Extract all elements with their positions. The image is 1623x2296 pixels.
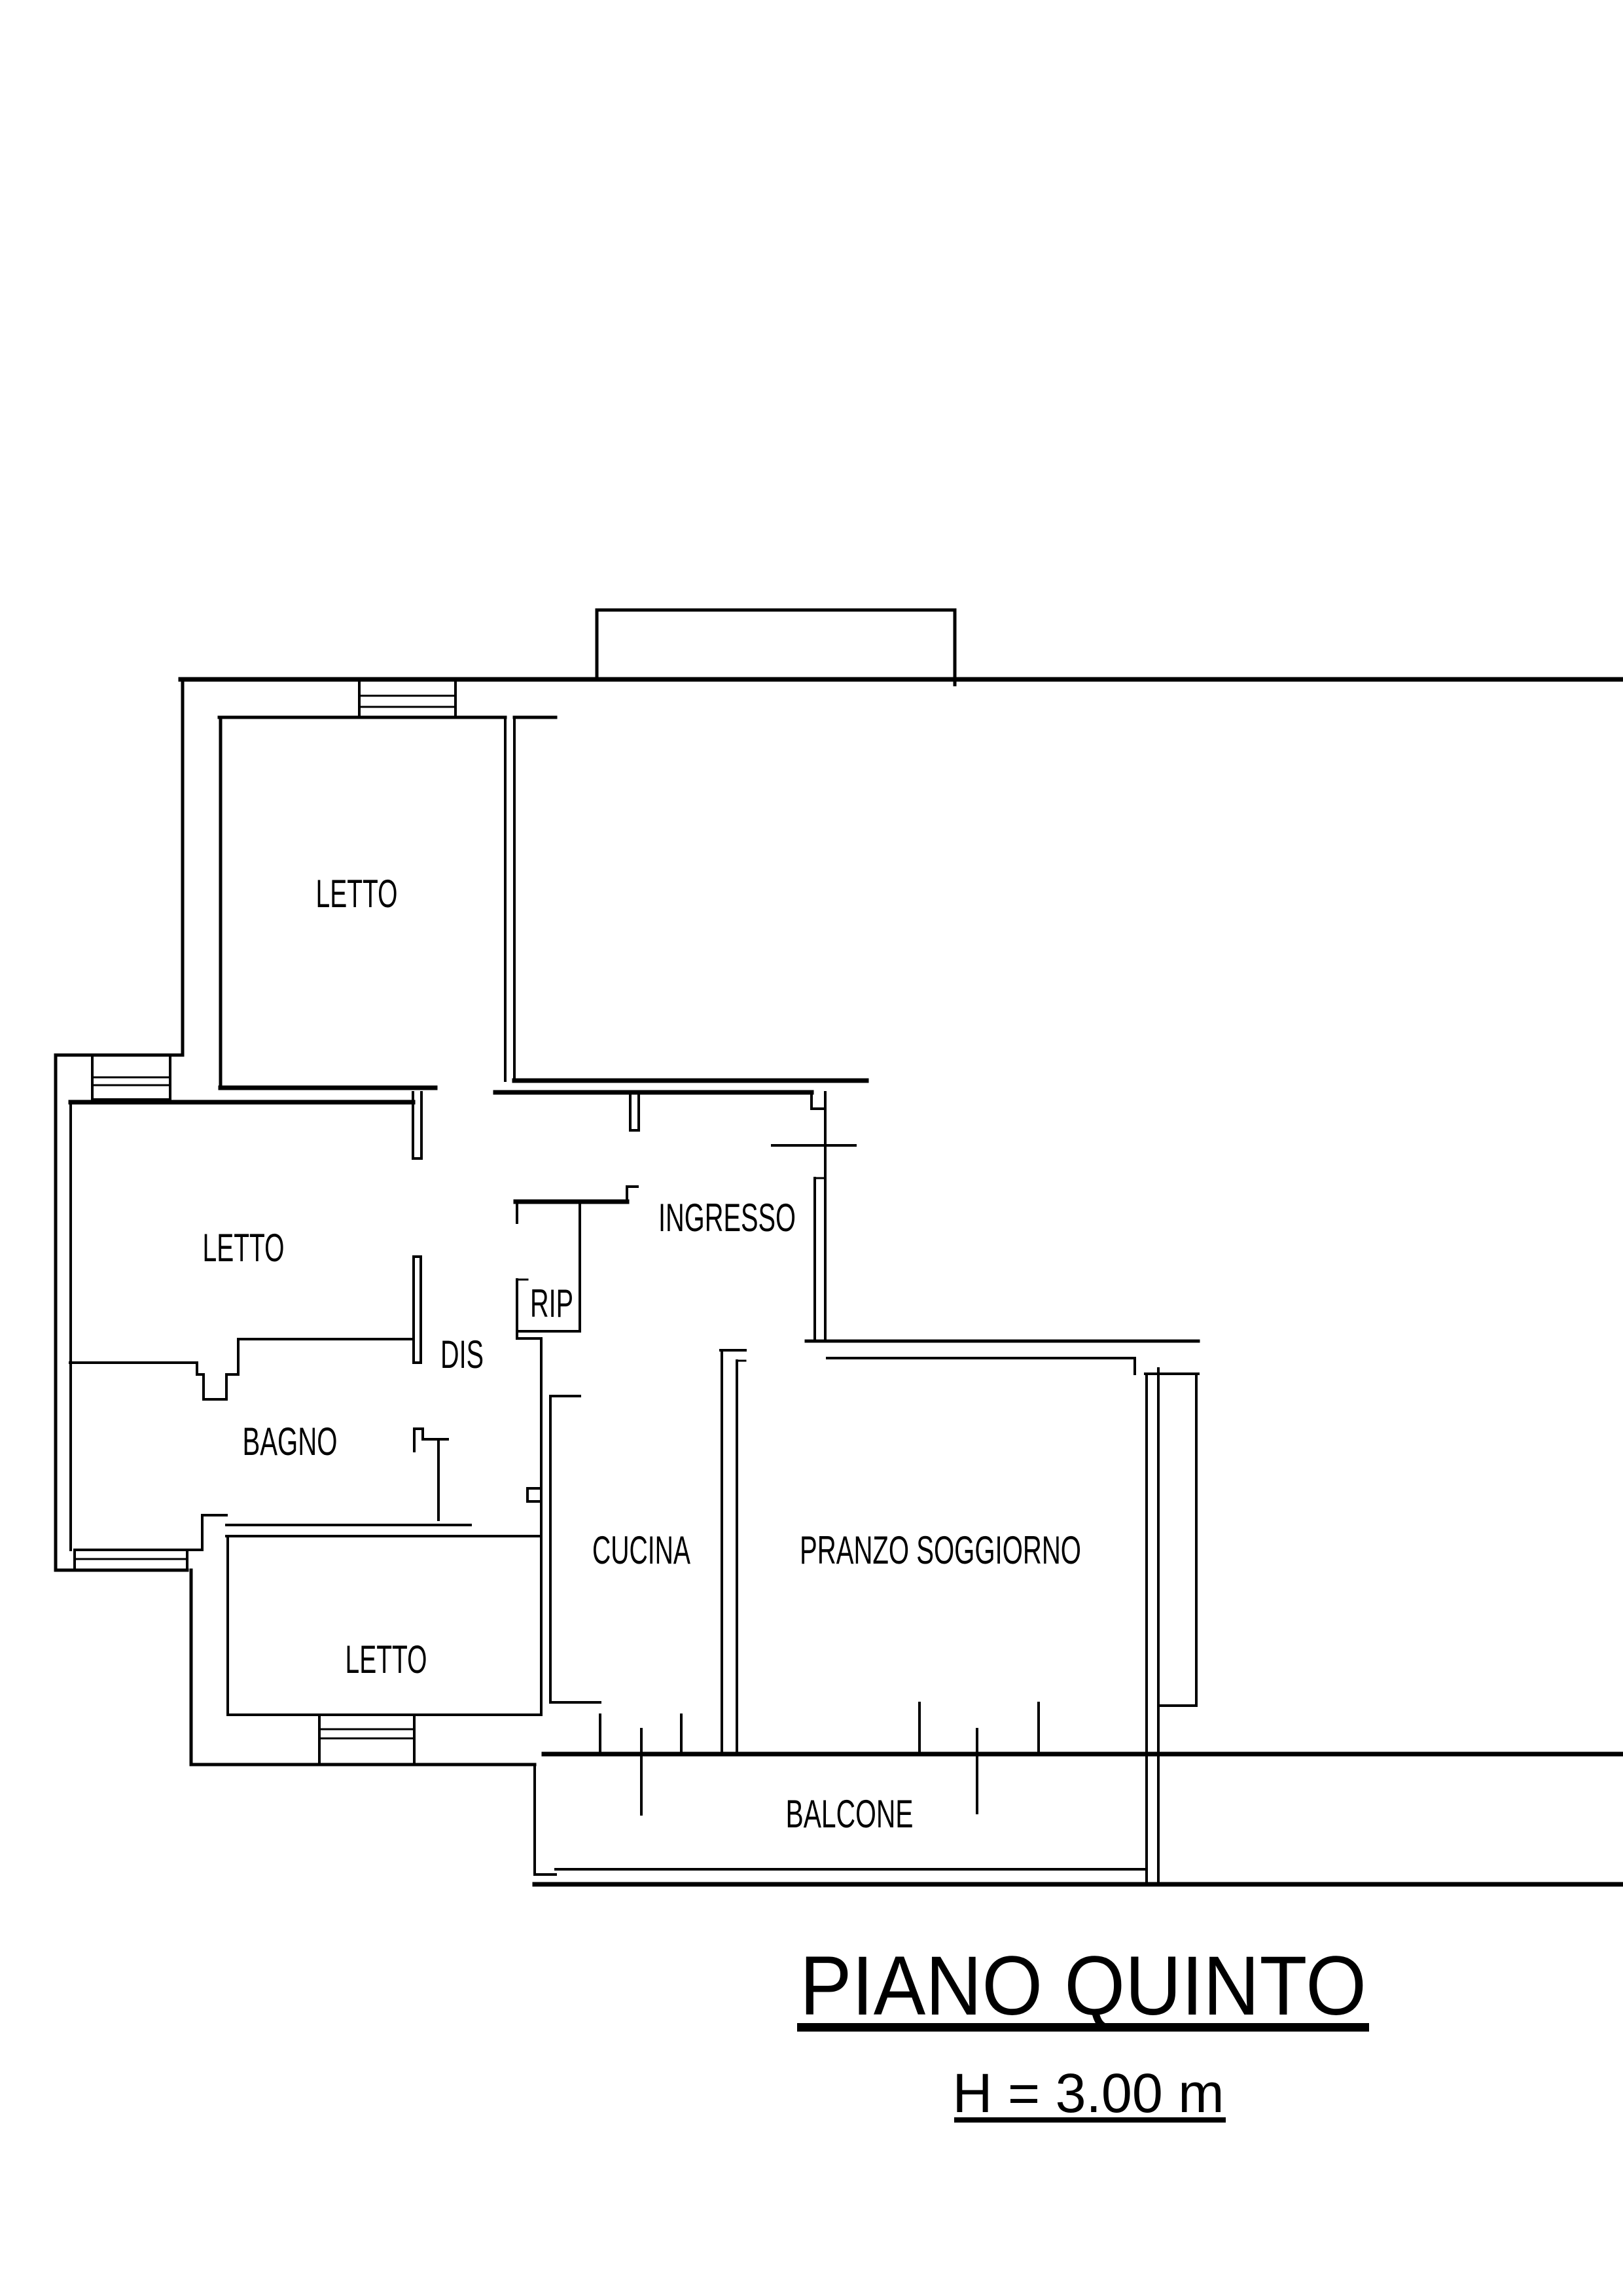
- room-label-rip: RIP: [530, 1282, 573, 1325]
- title-underline: [797, 2023, 1369, 2032]
- room-label-pranzo-soggiorno: PRANZO SOGGIORNO: [800, 1528, 1081, 1572]
- floorplan-drawing: LETTO LETTO DIS RIP INGRESSO BAGNO CUCIN…: [0, 0, 1623, 2296]
- page-title: PIANO QUINTO: [800, 1939, 1366, 2033]
- walls-standard: [70, 679, 1198, 1884]
- room-label-balcone: BALCONE: [786, 1792, 914, 1836]
- room-label-dis: DIS: [440, 1333, 484, 1376]
- room-label-bagno: BAGNO: [243, 1420, 338, 1463]
- height-note: H = 3.00 m: [953, 2062, 1224, 2124]
- room-label-letto-top: LETTO: [316, 872, 398, 916]
- room-label-cucina: CUCINA: [592, 1528, 690, 1572]
- height-note-underline: [954, 2117, 1226, 2123]
- room-label-letto-bottom: LETTO: [346, 1638, 427, 1681]
- room-label-letto-mid: LETTO: [203, 1226, 285, 1270]
- floorplan-page: LETTO LETTO DIS RIP INGRESSO BAGNO CUCIN…: [0, 0, 1623, 2296]
- room-label-ingresso: INGRESSO: [658, 1196, 796, 1240]
- walls-heavy: [71, 679, 1623, 1884]
